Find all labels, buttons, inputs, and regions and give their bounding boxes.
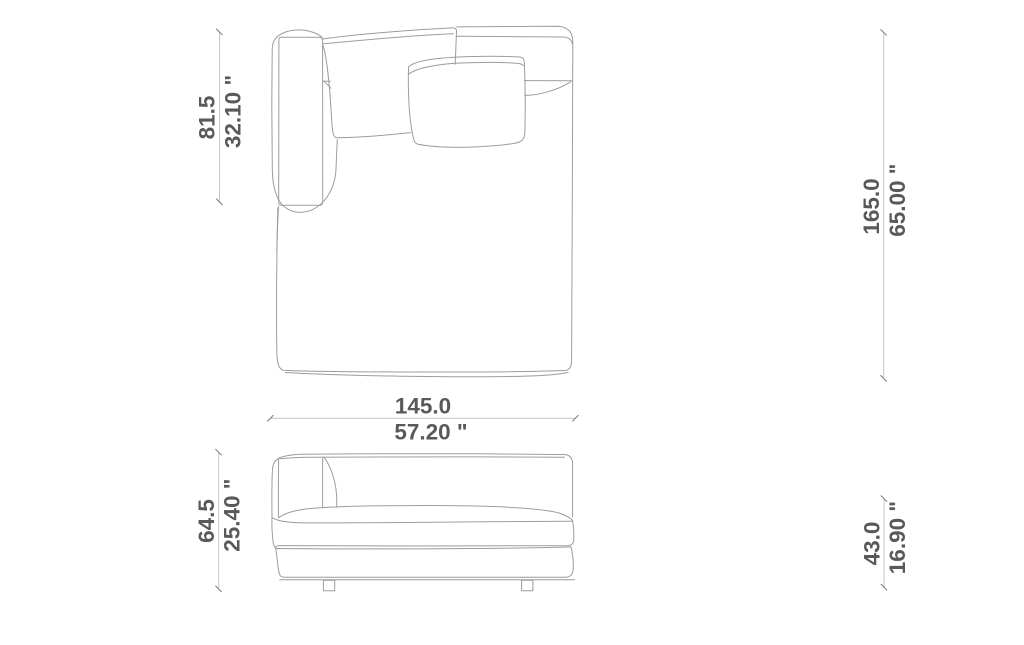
svg-text:25.40 ": 25.40 " bbox=[220, 479, 245, 552]
svg-text:57.20 ": 57.20 " bbox=[394, 420, 467, 445]
svg-text:81.5: 81.5 bbox=[195, 96, 220, 140]
svg-text:43.0: 43.0 bbox=[859, 522, 884, 566]
svg-text:32.10 ": 32.10 " bbox=[221, 75, 246, 148]
svg-text:64.5: 64.5 bbox=[194, 499, 219, 543]
svg-text:65.00 ": 65.00 " bbox=[885, 164, 910, 237]
svg-text:145.0: 145.0 bbox=[395, 394, 451, 419]
svg-text:165.0: 165.0 bbox=[859, 178, 884, 234]
svg-text:16.90 ": 16.90 " bbox=[885, 501, 910, 574]
